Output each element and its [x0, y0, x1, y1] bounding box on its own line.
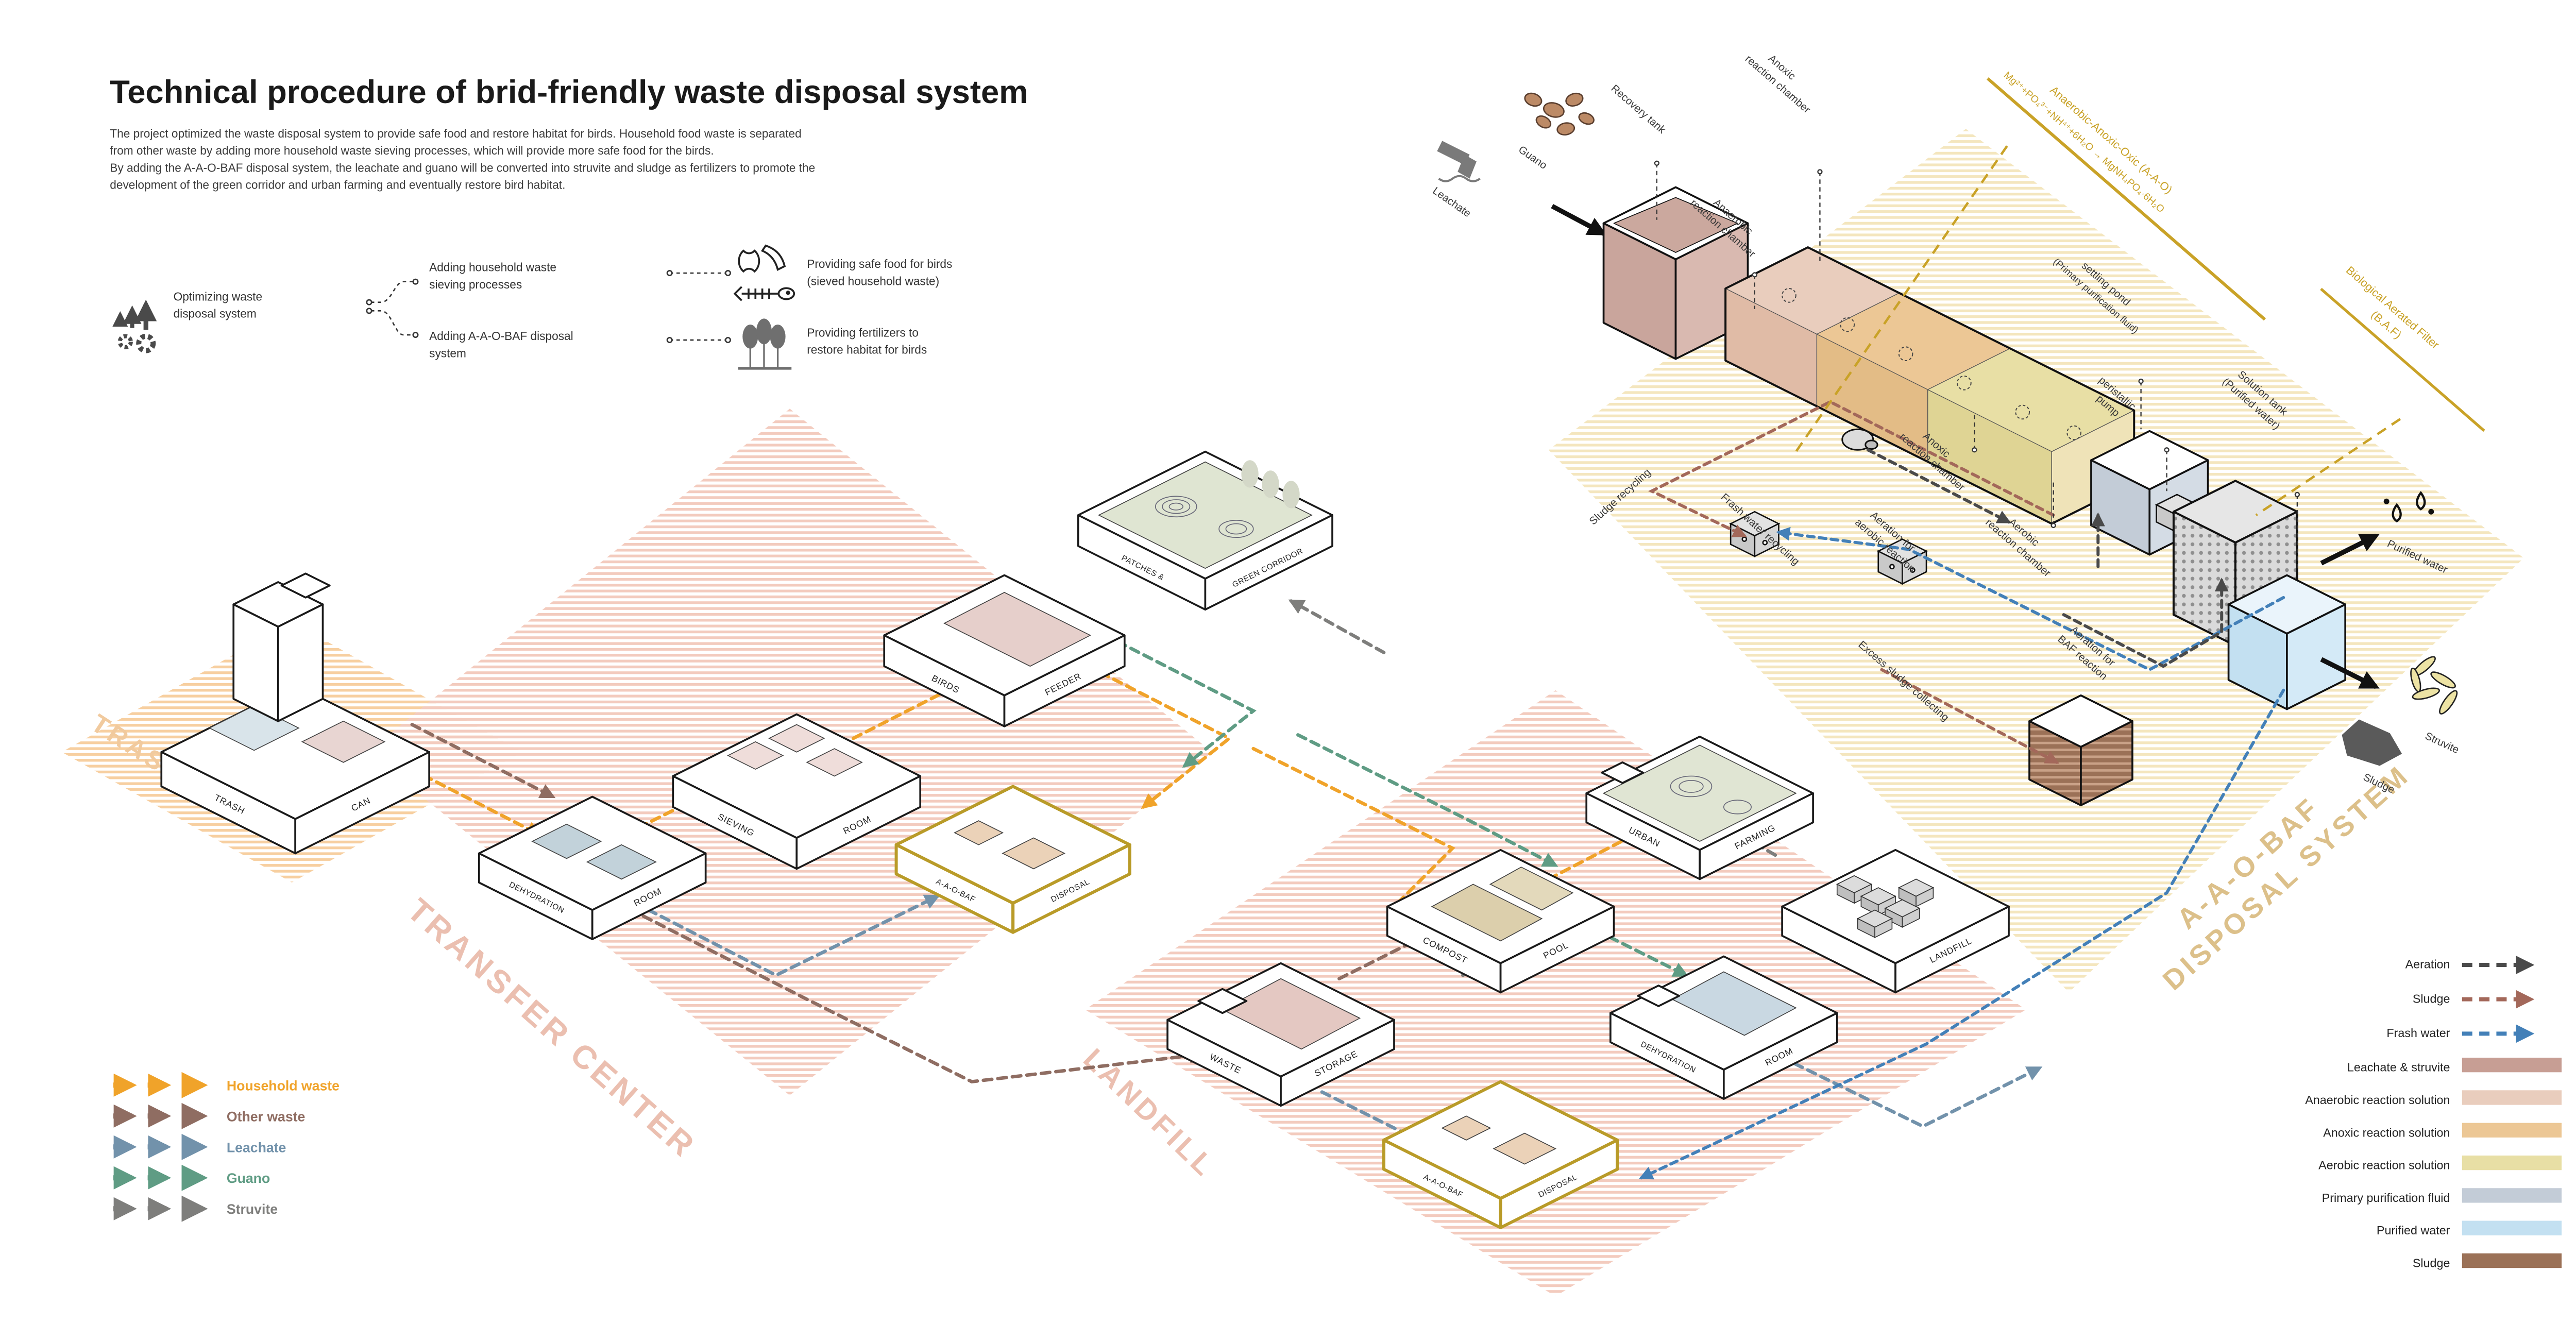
legend-other-waste-label: Other waste [227, 1109, 305, 1124]
legend-guano-label: Guano [227, 1171, 270, 1186]
struvite-crystals-icon [2409, 654, 2460, 716]
legend-sludge-arrow-label: Sludge [2413, 992, 2450, 1005]
anoxic1-callout: Anoxic reaction chamber [1743, 41, 1823, 116]
title-block: Technical procedure of brid-friendly was… [110, 74, 1028, 192]
flow-out2-line2: restore habitat for birds [807, 343, 927, 357]
swatch-anoxic [2462, 1123, 2562, 1138]
legend-primary-fluid-label: Primary purification fluid [2322, 1191, 2450, 1205]
flow-bracket-dots [367, 279, 418, 337]
struvite-flow [1291, 601, 1384, 653]
food-scraps-icon [735, 246, 794, 301]
left-legend-row-household: Household waste [113, 1078, 340, 1093]
intro-line1: The project optimized the waste disposal… [110, 127, 802, 140]
left-legend-row-leachate: Leachate [113, 1140, 286, 1155]
flow-connector-dots [667, 270, 731, 342]
legend-aerobic-label: Aerobic reaction solution [2318, 1159, 2450, 1172]
flow-branch1-line1: Adding household waste [429, 261, 556, 274]
baf-label: Biological Aerated Filter (B.A.F) [2321, 259, 2510, 431]
flow-branch1-line2: sieving processes [429, 278, 522, 291]
flow-branch2-line1: Adding A-A-O-BAF disposal [429, 329, 573, 343]
waste-disposal-diagram: TRASH CAN TRANSFER CENTER LANDFILL A-A-O… [0, 0, 2576, 1320]
swatch-sludge [2462, 1253, 2562, 1268]
legend-anoxic-label: Anoxic reaction solution [2323, 1126, 2450, 1139]
struvite-label: Struvite [2423, 730, 2461, 756]
page-title: Technical procedure of brid-friendly was… [110, 74, 1028, 110]
right-legend-frash-water: Frash water [2386, 1026, 2531, 1040]
building-patches-green-corridor: PATCHES & GREEN CORRIDOR [1078, 452, 1332, 610]
flow-legend: Optimizing waste disposal system Adding … [120, 246, 953, 368]
struvite-text: Struvite [2423, 730, 2461, 756]
recovery-tank-callout: Recovery tank [1609, 82, 1668, 136]
right-legend-aeration: Aeration [2405, 958, 2531, 971]
leachate-input-label: Leachate [1430, 185, 1473, 220]
swatch-primary-fluid [2462, 1188, 2562, 1202]
intro-line4: development of the green corridor and ur… [110, 178, 565, 192]
flow-out2-line1: Providing fertilizers to [807, 326, 919, 339]
swatch-aerobic [2462, 1156, 2562, 1170]
swatch-anaerobic [2462, 1090, 2562, 1105]
intro-line3: By adding the A-A-O-BAF disposal system,… [110, 161, 815, 174]
legend-sludge-swatch-label: Sludge [2413, 1257, 2450, 1270]
swatch-purified-water [2462, 1221, 2562, 1235]
solution-tank [2229, 575, 2346, 709]
legend-anaerobic-label: Anaerobic reaction solution [2305, 1093, 2450, 1107]
left-legend: Household waste Other waste Leachate Gua… [113, 1078, 340, 1217]
guano-input-label: Guano [1516, 144, 1549, 172]
legend-frash-water-label: Frash water [2386, 1026, 2450, 1040]
aao-title: Anaerobic-Anoxic-Oxic (A-A-O) [2047, 83, 2175, 196]
guano-icon [1523, 91, 1596, 136]
flow-bracket [371, 282, 414, 335]
left-legend-row-struvite: Struvite [113, 1201, 278, 1217]
swatch-leachate-struvite [2462, 1058, 2562, 1072]
flow-root-line1: Optimizing waste [174, 290, 262, 303]
input-arrow [1552, 206, 1604, 233]
legend-struvite-label: Struvite [227, 1201, 278, 1217]
legend-household-label: Household waste [227, 1078, 340, 1093]
legend-aeration-label: Aeration [2405, 958, 2450, 971]
legend-leachate-struvite-label: Leachate & struvite [2347, 1061, 2450, 1074]
flow-root-line2: disposal system [174, 307, 257, 320]
flow-out1-line1: Providing safe food for birds [807, 257, 952, 270]
flow-out1-line2: (sieved household waste) [807, 274, 939, 287]
intro-line2: from other waste by adding more househol… [110, 144, 714, 157]
legend-purified-water-label: Purified water [2377, 1224, 2450, 1237]
trees-icon [738, 318, 791, 368]
optimize-icon [120, 304, 154, 351]
right-legend-swatch-rows: Leachate & struvite Anaerobic reaction s… [2305, 1058, 2562, 1270]
left-legend-row-other: Other waste [113, 1109, 305, 1124]
recovery-tank-label: Recovery tank [1609, 82, 1668, 136]
flow-branch2-line2: system [429, 346, 466, 360]
leachate-pipe-icon [1437, 141, 1480, 181]
left-legend-row-guano: Guano [113, 1171, 270, 1186]
flow-connectors [670, 273, 728, 340]
right-legend-sludge-arrow: Sludge [2413, 992, 2531, 1005]
right-legend: Aeration Sludge Frash water Leachate & s… [2305, 958, 2562, 1270]
zone-hatches [62, 129, 2524, 1296]
legend-leachate-label: Leachate [227, 1140, 286, 1155]
